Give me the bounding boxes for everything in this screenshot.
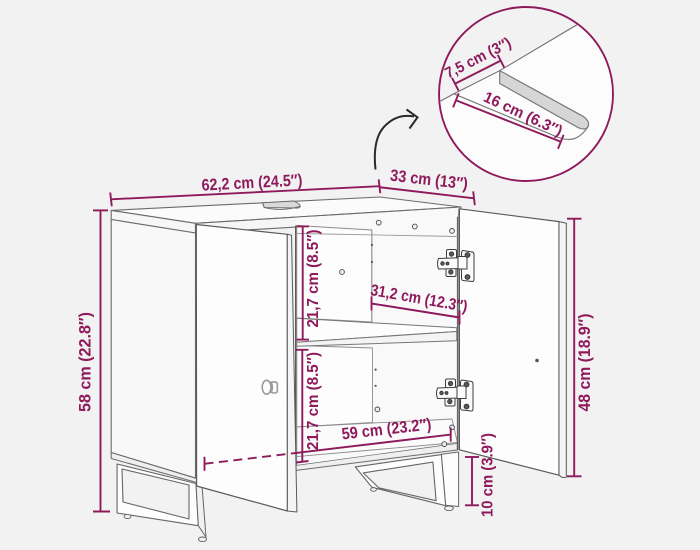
- svg-text:48 cm (18.9″): 48 cm (18.9″): [576, 314, 594, 412]
- svg-text:21,7 cm (8.5″): 21,7 cm (8.5″): [305, 230, 322, 328]
- svg-text:10 cm (3.9″): 10 cm (3.9″): [480, 433, 497, 517]
- svg-text:58 cm (22.8″): 58 cm (22.8″): [77, 312, 95, 412]
- svg-text:21,7 cm (8.5″): 21,7 cm (8.5″): [305, 352, 322, 450]
